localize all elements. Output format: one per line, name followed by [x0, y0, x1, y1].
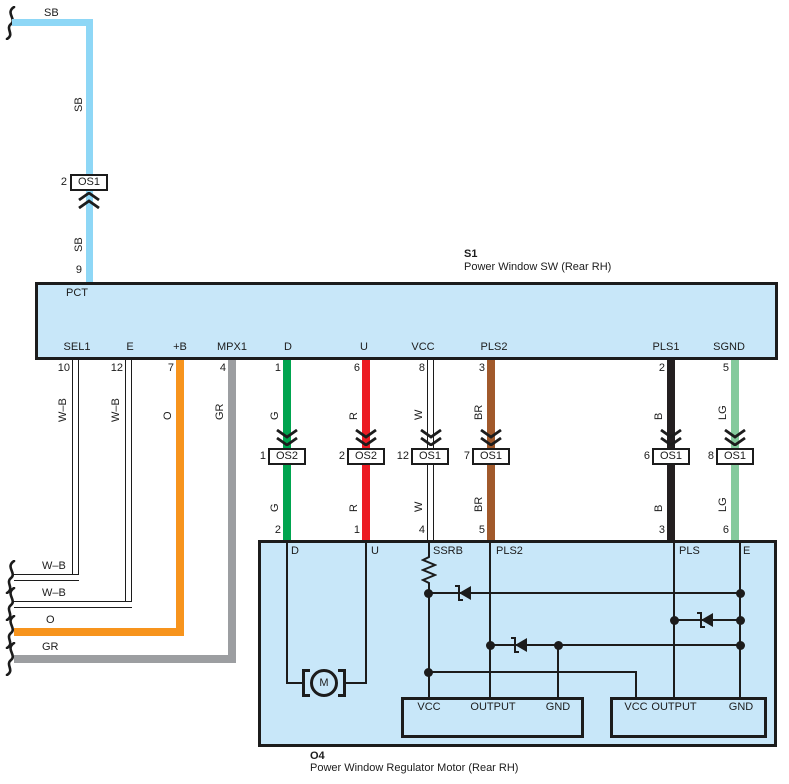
driver1-gnd: GND	[546, 701, 570, 714]
s1-pct-label: PCT	[66, 287, 88, 300]
driver1-output: OUTPUT	[470, 701, 515, 714]
tail-label-e: W–B	[42, 587, 66, 600]
junction-dot	[736, 641, 745, 650]
motor-terminal-pls2: PLS2	[496, 545, 523, 558]
tail-label-o: O	[46, 614, 55, 627]
junction-dot	[554, 641, 563, 650]
s1-pin-u: U	[360, 341, 368, 354]
motor-pin-number-d: 2	[261, 524, 281, 537]
connector-pin-8: 8	[692, 450, 714, 463]
wire-color-label-b-lower: B	[653, 505, 666, 512]
wiring-diagram: SB SB 2 OS1 SB 9 S1 Power Window SW (Rea…	[0, 0, 789, 784]
motor-brush-left	[302, 669, 310, 697]
trace-d-vertical	[286, 543, 288, 684]
wire-color-label-plusb: O	[162, 411, 175, 420]
junction-dot	[486, 641, 495, 650]
wire-color-label-sb-upper: SB	[73, 97, 86, 112]
wire-sb-vertical	[86, 19, 93, 282]
wire-plusb-tail	[14, 628, 184, 636]
wire-sel1-vertical	[72, 360, 79, 581]
wire-color-label-e: W–B	[110, 398, 123, 422]
s1-pin-number-plusb: 7	[154, 362, 174, 375]
motor-pin-number-ssrb: 4	[405, 524, 425, 537]
junction-dot	[736, 616, 745, 625]
motor-name: Power Window Regulator Motor (Rear RH)	[310, 762, 518, 775]
wire-color-label-g-lower: G	[269, 503, 282, 512]
wire-color-label-br-upper: BR	[473, 405, 486, 420]
connector-os1-top-pin: 2	[45, 176, 67, 189]
wire-break-icon	[2, 642, 18, 676]
s1-pin-e: E	[126, 341, 133, 354]
motor-pin-number-u: 1	[340, 524, 360, 537]
wire-mpx1-vertical	[228, 360, 236, 663]
driver2-vcc: VCC	[624, 701, 647, 714]
s1-pin-number-u: 6	[340, 362, 360, 375]
wire-plusb-vertical	[176, 360, 184, 636]
wire-mpx1-tail	[14, 655, 236, 663]
motor-terminal-u: U	[371, 545, 379, 558]
s1-name: Power Window SW (Rear RH)	[464, 261, 611, 274]
s1-pin-number-sel1: 10	[50, 362, 70, 375]
s1-pin-pls2: PLS2	[481, 341, 508, 354]
connector-pin-6: 6	[628, 450, 650, 463]
driver2-gnd: GND	[729, 701, 753, 714]
wire-color-label-lg-upper: LG	[717, 405, 730, 420]
zener-diode-icon	[692, 611, 716, 629]
chevron-down-icon	[480, 429, 502, 446]
wire-color-label-br-lower: BR	[473, 497, 486, 512]
motor-brush-right	[338, 669, 346, 697]
chevron-down-icon	[420, 429, 442, 446]
connector-os2-u: OS2	[347, 448, 385, 465]
s1-pin-number-pls1: 2	[645, 362, 665, 375]
junction-dot	[670, 616, 679, 625]
driver1-vcc: VCC	[417, 701, 440, 714]
wire-color-label-r-lower: R	[348, 504, 361, 512]
zener-diode-icon	[450, 584, 474, 602]
s1-pin-number-d: 1	[261, 362, 281, 375]
chevron-down-icon	[355, 429, 377, 446]
motor-terminal-e: E	[743, 545, 750, 558]
connector-pin-7: 7	[448, 450, 470, 463]
s1-pin-plusb: +B	[173, 341, 187, 354]
junction-dot	[424, 668, 433, 677]
wire-color-label-sel1: W–B	[57, 398, 70, 422]
wire-color-label-b-upper: B	[653, 413, 666, 420]
s1-pin-number-e: 12	[103, 362, 123, 375]
trace-vcc2-horizontal	[429, 671, 637, 673]
wire-sel1-tail	[14, 574, 79, 581]
wire-color-label-r-upper: R	[348, 412, 361, 420]
wire-color-label-sb-horizontal: SB	[44, 7, 59, 20]
chevron-up-icon	[78, 192, 100, 209]
s1-pin-sel1: SEL1	[64, 341, 91, 354]
s1-pin-pls1: PLS1	[653, 341, 680, 354]
s1-pin-d: D	[284, 341, 292, 354]
tail-label-sel1: W–B	[42, 560, 66, 573]
junction-dot	[424, 589, 433, 598]
s1-code: S1	[464, 248, 477, 261]
connector-os2-d: OS2	[268, 448, 306, 465]
chevron-down-icon	[724, 429, 746, 446]
connector-os1-top: OS1	[70, 174, 108, 191]
s1-pin-number-pls2: 3	[465, 362, 485, 375]
motor-terminal-pls: PLS	[679, 545, 700, 558]
motor-pin-number-pls2: 5	[465, 524, 485, 537]
motor-symbol: M	[310, 669, 338, 697]
connector-pin-2: 2	[323, 450, 345, 463]
trace-ssrb-vertical	[428, 584, 430, 697]
motor-pin-number-e: 6	[709, 524, 729, 537]
pin-number-9: 9	[62, 264, 82, 277]
s1-pin-sgnd: SGND	[713, 341, 745, 354]
motor-terminal-d: D	[291, 545, 299, 558]
junction-dot	[736, 589, 745, 598]
zener-diode-icon	[506, 636, 530, 654]
connector-os1-sgnd: OS1	[716, 448, 754, 465]
trace-row1	[429, 592, 740, 594]
s1-pin-number-sgnd: 5	[709, 362, 729, 375]
trace-u-vertical	[365, 543, 367, 684]
wire-e-vertical	[125, 360, 132, 608]
wire-color-label-mpx1: GR	[214, 404, 227, 421]
wire-color-label-sb-lower: SB	[73, 237, 86, 252]
motor-pin-number-pls: 3	[645, 524, 665, 537]
wire-sb-horizontal	[12, 19, 93, 26]
resistor-icon	[421, 553, 437, 585]
motor-terminal-ssrb: SSRB	[433, 545, 463, 558]
connector-os1-pls1: OS1	[652, 448, 690, 465]
s1-pin-number-mpx1: 4	[206, 362, 226, 375]
wire-color-label-w-upper: W	[413, 410, 426, 420]
tail-label-gr: GR	[42, 641, 59, 654]
wire-e-tail	[14, 601, 132, 608]
connector-pin-1: 1	[244, 450, 266, 463]
connector-os1-vcc: OS1	[411, 448, 449, 465]
chevron-down-icon	[660, 429, 682, 446]
connector-pin-12: 12	[387, 450, 409, 463]
trace-u-to-motor	[346, 682, 367, 684]
wire-color-label-g-upper: G	[269, 411, 282, 420]
trace-vcc2-vertical	[635, 671, 637, 697]
driver2-output: OUTPUT	[651, 701, 696, 714]
chevron-down-icon	[276, 429, 298, 446]
wire-color-label-lg-lower: LG	[717, 497, 730, 512]
s1-pin-mpx1: MPX1	[217, 341, 247, 354]
s1-pin-vcc: VCC	[411, 341, 434, 354]
wire-color-label-w-lower: W	[413, 502, 426, 512]
s1-pin-number-vcc: 8	[405, 362, 425, 375]
connector-os1-pls2: OS1	[472, 448, 510, 465]
trace-pls2-vertical	[489, 543, 491, 697]
